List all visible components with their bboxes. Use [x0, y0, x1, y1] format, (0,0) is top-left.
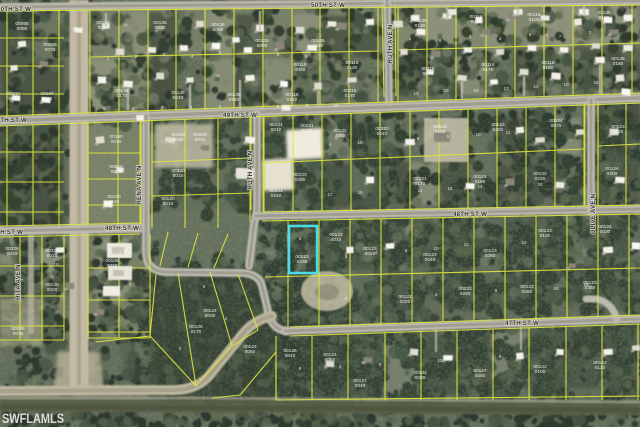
svg-text:11: 11	[506, 130, 511, 135]
svg-text:50TH ST W: 50TH ST W	[0, 6, 31, 13]
svg-text:0020: 0020	[47, 287, 58, 293]
svg-text:3: 3	[559, 350, 562, 355]
svg-text:0010: 0010	[173, 173, 184, 179]
svg-text:7: 7	[559, 34, 562, 39]
svg-text:0040: 0040	[425, 257, 436, 263]
svg-text:0040: 0040	[355, 383, 366, 389]
svg-text:5: 5	[345, 254, 348, 259]
svg-text:6: 6	[529, 32, 532, 37]
svg-text:9: 9	[417, 136, 420, 141]
svg-text:9: 9	[305, 54, 308, 59]
svg-text:0240: 0240	[613, 129, 624, 135]
svg-text:8: 8	[299, 366, 302, 371]
svg-text:0050: 0050	[245, 349, 256, 355]
svg-text:50TH ST W: 50TH ST W	[311, 2, 345, 9]
svg-text:RUTH AVE N: RUTH AVE N	[247, 150, 254, 189]
svg-text:0130: 0130	[347, 65, 358, 71]
svg-text:4: 4	[190, 105, 193, 110]
svg-text:5: 5	[447, 134, 450, 139]
svg-text:0040: 0040	[285, 353, 296, 359]
svg-text:49TH ST W: 49TH ST W	[0, 117, 27, 124]
svg-text:0170: 0170	[191, 329, 202, 335]
svg-text:0010: 0010	[163, 201, 174, 207]
svg-text:48TH ST W: 48TH ST W	[105, 225, 139, 232]
svg-text:10: 10	[553, 286, 559, 291]
svg-text:0050: 0050	[475, 373, 486, 379]
svg-text:0280: 0280	[295, 177, 306, 183]
svg-text:13: 13	[413, 91, 419, 96]
svg-text:0010: 0010	[111, 139, 122, 145]
svg-text:SWFLAMLS: SWFLAMLS	[2, 410, 64, 426]
svg-text:0080: 0080	[415, 375, 426, 381]
svg-text:6: 6	[405, 248, 408, 253]
svg-text:2: 2	[225, 316, 228, 321]
svg-text:10: 10	[443, 88, 449, 93]
svg-text:11: 11	[464, 242, 469, 247]
svg-text:8: 8	[277, 52, 280, 57]
svg-text:0010: 0010	[98, 25, 109, 31]
svg-text:0010: 0010	[7, 251, 18, 257]
svg-text:5: 5	[299, 144, 302, 149]
svg-text:0260: 0260	[522, 289, 533, 295]
svg-text:1: 1	[107, 56, 110, 61]
svg-text:0120: 0120	[595, 365, 606, 371]
svg-text:8: 8	[499, 354, 502, 359]
svg-text:0090: 0090	[257, 43, 268, 49]
svg-text:4: 4	[191, 54, 194, 59]
svg-text:10: 10	[563, 82, 569, 87]
svg-text:17: 17	[503, 86, 509, 91]
svg-text:0240: 0240	[271, 193, 282, 199]
svg-text:16: 16	[357, 140, 363, 145]
svg-text:0100: 0100	[529, 17, 540, 23]
svg-text:0030: 0030	[13, 331, 24, 337]
svg-text:3: 3	[469, 34, 472, 39]
svg-text:10: 10	[53, 262, 59, 267]
svg-text:0060: 0060	[325, 357, 336, 363]
svg-text:0010: 0010	[331, 237, 342, 243]
svg-text:0020: 0020	[9, 96, 20, 102]
svg-text:0240: 0240	[229, 97, 240, 103]
svg-text:0110: 0110	[109, 199, 120, 205]
svg-text:16: 16	[583, 282, 589, 287]
svg-text:0190: 0190	[543, 65, 554, 71]
svg-text:0090: 0090	[17, 26, 28, 32]
svg-text:10: 10	[333, 103, 339, 108]
svg-text:0050: 0050	[295, 67, 306, 73]
svg-text:0070: 0070	[423, 71, 434, 77]
svg-text:3: 3	[339, 364, 342, 369]
svg-text:3: 3	[161, 105, 164, 110]
svg-text:0010: 0010	[47, 253, 58, 259]
svg-text:8: 8	[345, 296, 348, 301]
svg-text:18: 18	[447, 186, 453, 191]
svg-text:14: 14	[477, 184, 483, 189]
svg-text:4: 4	[329, 142, 332, 147]
svg-text:13: 13	[533, 84, 539, 89]
svg-text:4: 4	[499, 36, 502, 41]
svg-text:2: 2	[119, 250, 122, 255]
svg-text:0010: 0010	[271, 127, 282, 133]
svg-text:RENA AVE N: RENA AVE N	[136, 165, 143, 205]
svg-text:3: 3	[589, 30, 592, 35]
svg-text:0200: 0200	[493, 127, 504, 133]
svg-text:9: 9	[379, 362, 382, 367]
svg-text:48TH ST W: 48TH ST W	[453, 211, 487, 218]
svg-text:0010: 0010	[111, 169, 122, 175]
svg-text:0010: 0010	[107, 263, 118, 269]
svg-text:2: 2	[135, 54, 138, 59]
svg-text:3: 3	[129, 282, 132, 287]
svg-text:16: 16	[473, 88, 479, 93]
svg-text:3: 3	[299, 236, 302, 241]
svg-text:5: 5	[179, 346, 182, 351]
svg-text:4: 4	[375, 250, 378, 255]
svg-text:RUTH AVE N: RUTH AVE N	[387, 24, 394, 63]
svg-text:0040: 0040	[173, 137, 184, 143]
svg-text:0040: 0040	[377, 131, 388, 137]
svg-text:0180: 0180	[613, 61, 624, 67]
svg-text:0070: 0070	[45, 47, 56, 53]
svg-text:OLIVE AVE N: OLIVE AVE N	[590, 193, 597, 234]
svg-text:2: 2	[132, 106, 135, 111]
svg-text:0060: 0060	[471, 19, 482, 25]
svg-text:0200: 0200	[607, 171, 618, 177]
svg-text:16: 16	[521, 240, 527, 245]
svg-text:0250: 0250	[460, 291, 471, 297]
svg-text:8: 8	[439, 38, 442, 43]
svg-text:RITA AVE N: RITA AVE N	[15, 264, 22, 300]
svg-text:0100: 0100	[535, 369, 546, 375]
svg-text:0020: 0020	[302, 128, 313, 134]
svg-text:0100: 0100	[435, 129, 446, 135]
svg-text:0060: 0060	[485, 253, 496, 259]
svg-text:0010: 0010	[42, 96, 53, 102]
svg-text:0130: 0130	[415, 23, 426, 29]
svg-text:47TH ST W: 47TH ST W	[505, 320, 539, 327]
svg-text:6: 6	[203, 284, 206, 289]
svg-text:9: 9	[306, 103, 309, 108]
svg-text:10: 10	[357, 190, 363, 195]
svg-text:0030: 0030	[155, 25, 166, 31]
svg-text:0170: 0170	[415, 181, 426, 187]
svg-text:3: 3	[163, 52, 166, 57]
svg-text:3: 3	[435, 292, 438, 297]
svg-text:0170: 0170	[483, 67, 494, 73]
svg-text:8: 8	[277, 104, 280, 109]
svg-text:10: 10	[475, 132, 481, 137]
svg-text:18: 18	[537, 182, 543, 187]
svg-text:0040: 0040	[173, 95, 184, 101]
svg-text:0110: 0110	[313, 43, 324, 49]
svg-text:8: 8	[495, 288, 498, 293]
svg-text:0070: 0070	[551, 123, 562, 129]
svg-text:0220: 0220	[400, 299, 411, 305]
svg-text:14: 14	[417, 188, 423, 193]
svg-text:1: 1	[103, 106, 106, 111]
svg-text:0030: 0030	[205, 313, 216, 319]
svg-text:0060: 0060	[335, 133, 346, 139]
svg-text:48TH ST W: 48TH ST W	[0, 229, 23, 236]
svg-text:49TH ST W: 49TH ST W	[223, 112, 257, 119]
svg-text:0030: 0030	[600, 229, 611, 235]
svg-text:10: 10	[437, 358, 443, 363]
svg-text:0230: 0230	[297, 259, 308, 265]
svg-text:0010: 0010	[195, 137, 206, 143]
svg-text:0170: 0170	[117, 93, 128, 99]
svg-text:0150: 0150	[287, 97, 298, 103]
svg-text:10: 10	[433, 246, 439, 251]
svg-text:5: 5	[219, 50, 222, 55]
svg-text:0160: 0160	[599, 15, 610, 21]
svg-text:0050: 0050	[213, 27, 224, 33]
svg-text:16: 16	[593, 80, 599, 85]
svg-text:0170: 0170	[345, 93, 356, 99]
svg-text:5: 5	[219, 104, 222, 109]
svg-text:17: 17	[327, 192, 333, 197]
svg-text:0120: 0120	[540, 233, 551, 239]
svg-text:1: 1	[409, 36, 412, 41]
